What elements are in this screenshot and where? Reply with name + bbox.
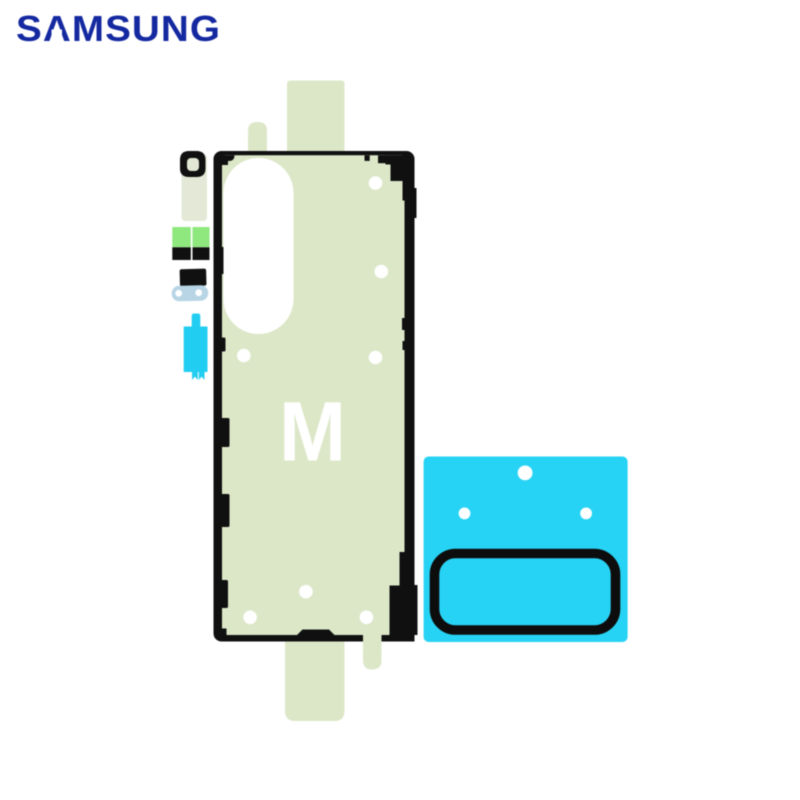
- svg-text:SAMSUNG: SAMSUNG: [16, 8, 221, 49]
- svg-text:M: M: [279, 385, 346, 479]
